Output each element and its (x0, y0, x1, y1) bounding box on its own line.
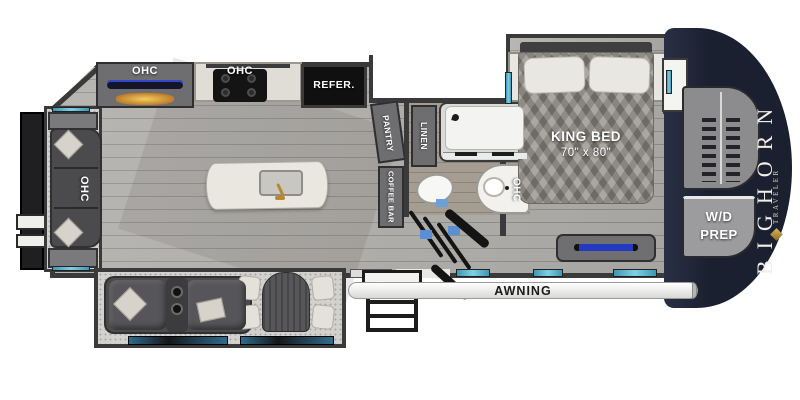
hanging-clothes-right (726, 118, 740, 182)
awning-bar-endcap (692, 282, 697, 299)
dresser-tv (574, 244, 638, 251)
brand-series-vertical: TRAVELER (772, 156, 783, 224)
hanging-clothes-left (702, 118, 716, 182)
bottom-window-1 (456, 269, 490, 277)
fireplace (116, 93, 174, 105)
dinette-chair-4 (311, 304, 335, 330)
sofa-end-table-bottom (48, 248, 98, 268)
king-bed-label: KING BED (518, 128, 654, 144)
dinette-chair-3 (311, 275, 335, 301)
front-cabinet-window (666, 70, 672, 94)
kitchen-ohc-label: OHC (215, 64, 265, 77)
bath-ohc-label: OHC (508, 170, 524, 210)
burner-4 (247, 88, 256, 97)
exterior-notch (369, 55, 510, 103)
wd-prep-label-line2: PREP (684, 226, 754, 242)
bed-window-left (505, 72, 512, 104)
shower-door-handle-2 (492, 152, 514, 156)
floorplan-canvas: OHC OHC OHC REFER. PANTRY COFFEE BAR LIN… (0, 0, 800, 400)
cupholder-2 (171, 303, 183, 315)
vanity-sink (483, 177, 505, 197)
island-faucet-base (275, 196, 285, 200)
entertainment-ohc-label: OHC (118, 64, 172, 78)
bed-pillow-left (523, 56, 585, 94)
slide-window-left (128, 336, 228, 345)
burner-3 (221, 88, 230, 97)
slide-window-right (240, 336, 334, 345)
bath-left-wall (404, 103, 409, 217)
bottom-window-3 (613, 269, 657, 277)
rear-slide-window-top (52, 107, 90, 112)
coffee-bar-label: COFFEE BAR (383, 168, 399, 226)
entry-step-rung-3 (366, 328, 418, 332)
bath-mat (436, 199, 448, 207)
entry-step-rung-1 (366, 300, 418, 304)
rear-slide-window-bottom (52, 266, 90, 271)
shower-pan (445, 106, 524, 150)
awning-label: AWNING (448, 283, 598, 298)
linen-label: LINEN (416, 108, 432, 164)
cupholder-1 (171, 286, 183, 298)
stair-vent-1 (420, 230, 432, 239)
bottom-window-2 (533, 269, 563, 277)
wd-prep-label-line1: W/D (684, 208, 754, 224)
wardrobe-rod (720, 92, 722, 184)
shower-door-handle-1 (455, 152, 477, 156)
bed-pillow-right (588, 56, 650, 94)
entry-step-rung-2 (366, 314, 418, 318)
tv (107, 80, 183, 89)
king-bed-size-label: 70" x 80" (518, 146, 654, 160)
dinette-table (262, 272, 310, 332)
sofa-ohc-label: OHC (76, 168, 92, 210)
refrigerator-label: REFER. (303, 78, 365, 92)
